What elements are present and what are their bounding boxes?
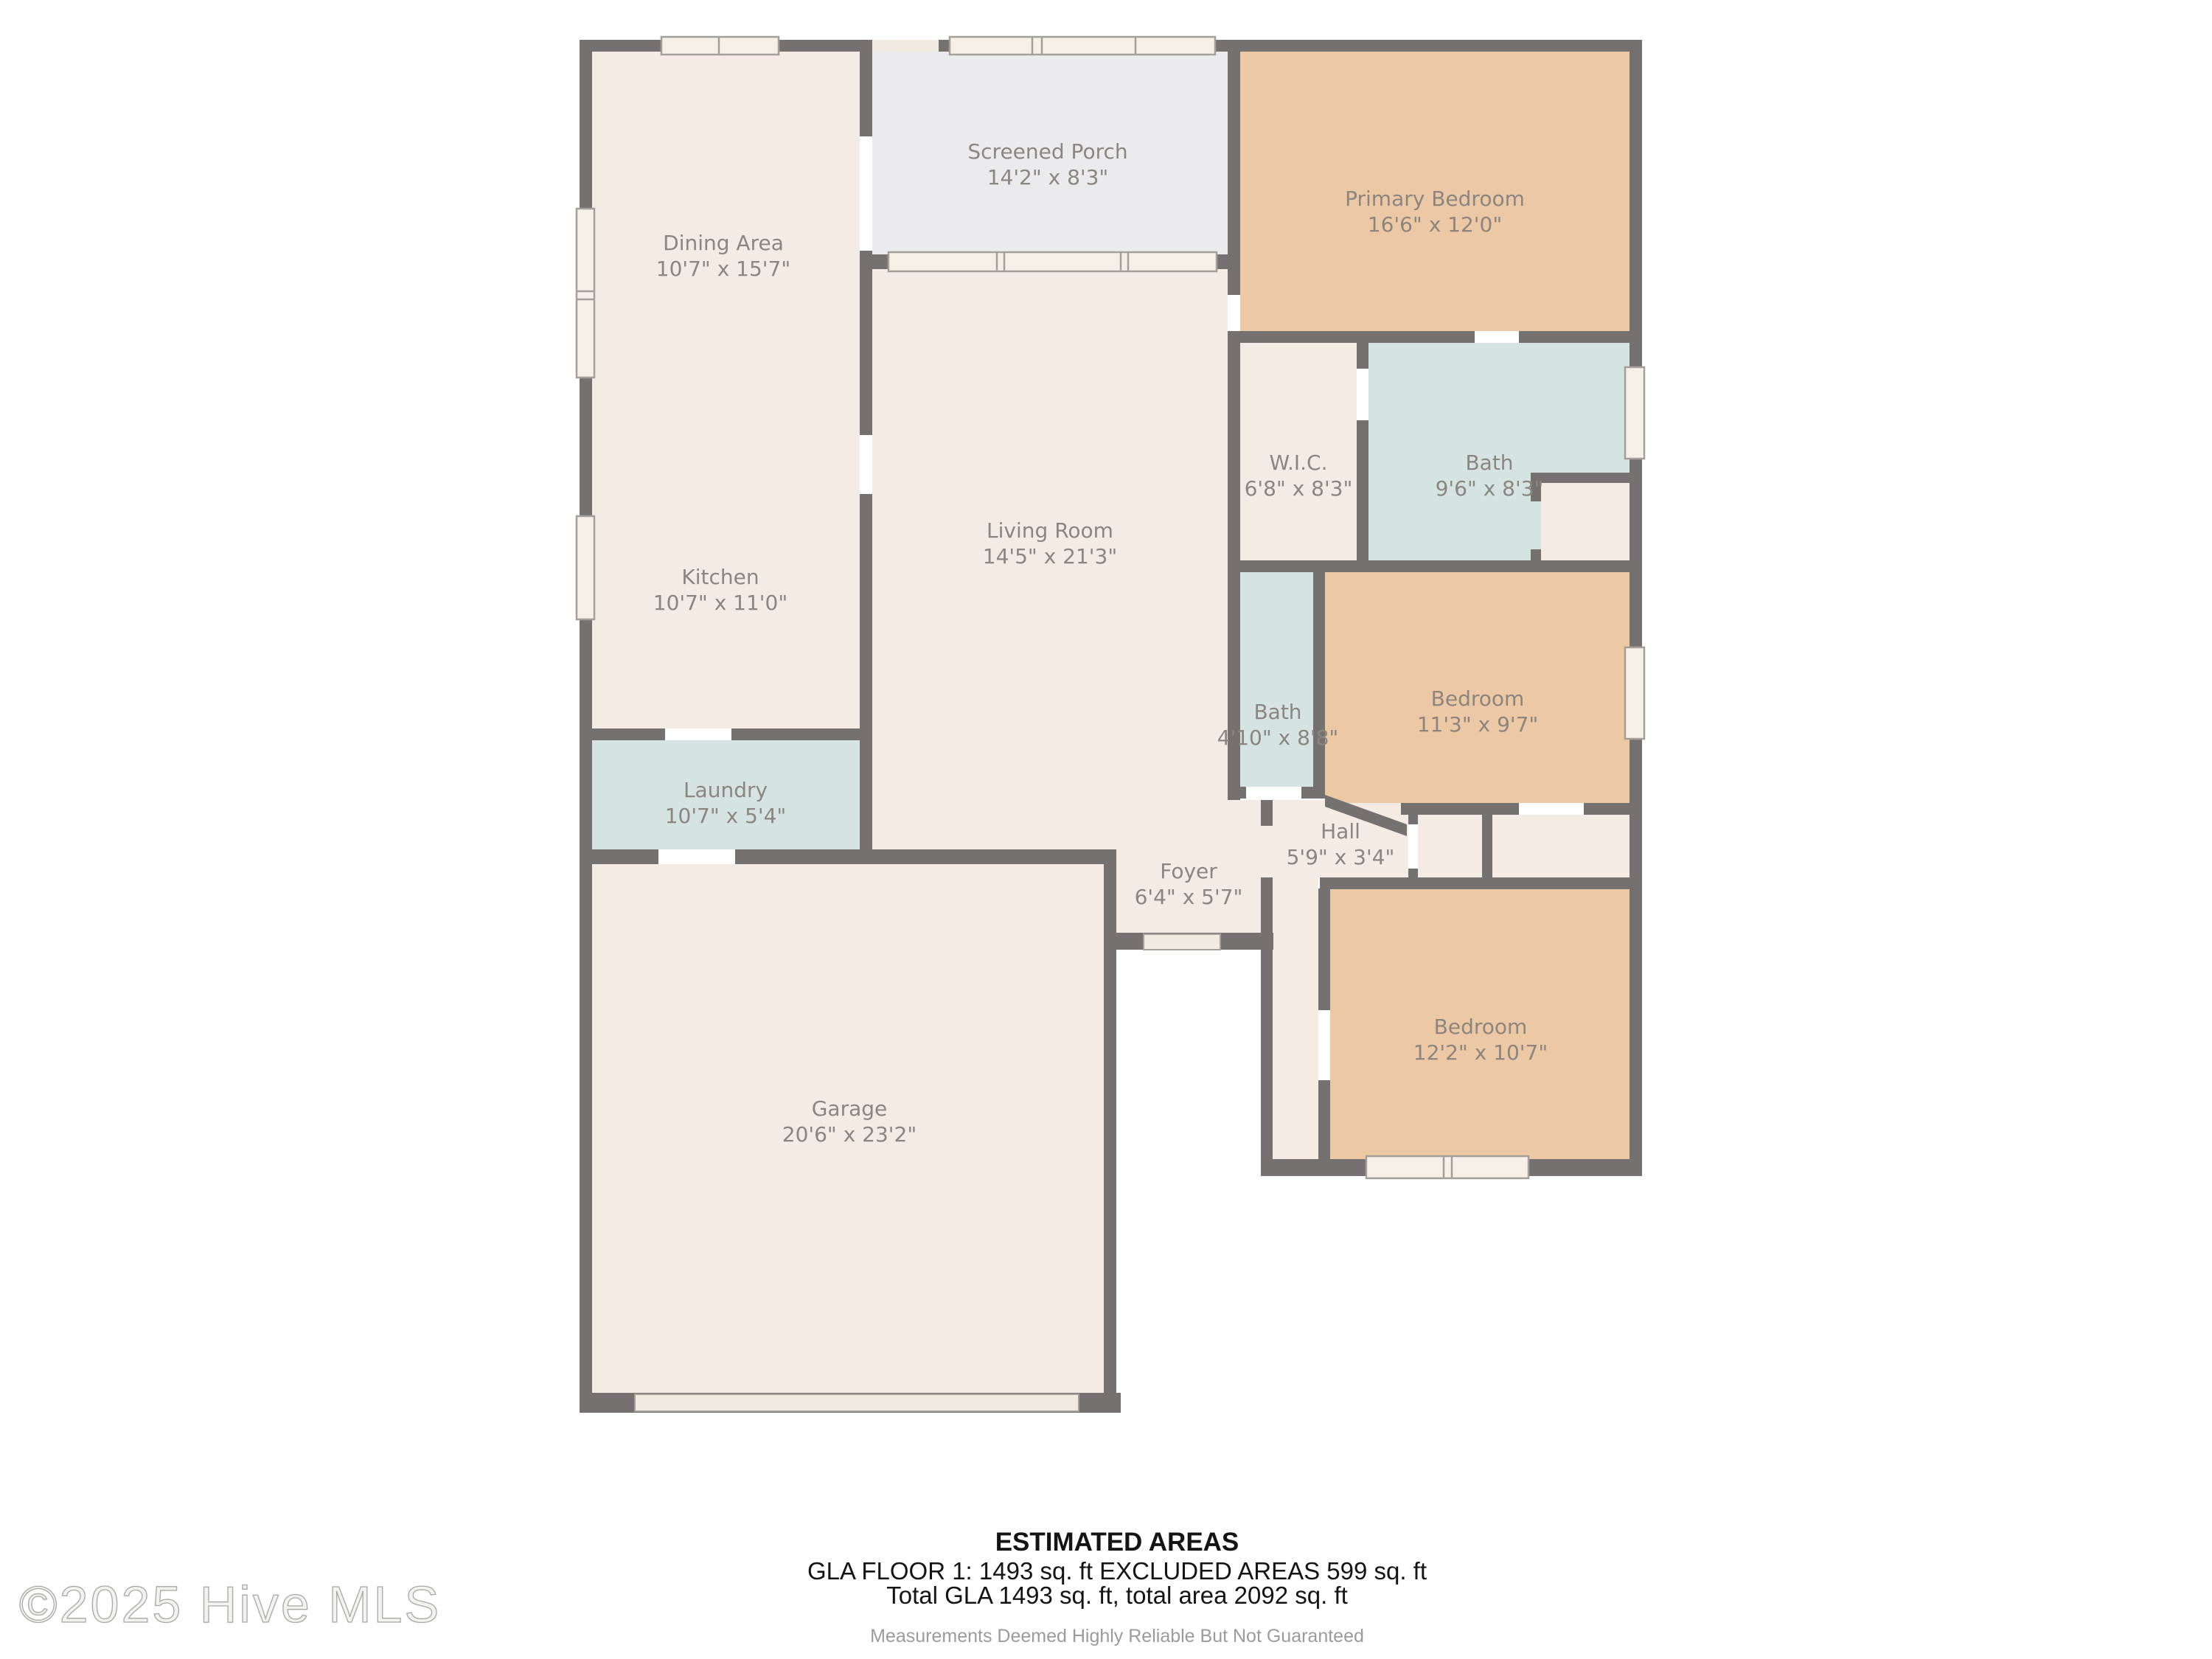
label-hall-bath: Bath 4'10" x 8'8" [1217, 699, 1339, 751]
room-name: Kitchen [653, 564, 787, 590]
room-name: Primary Bedroom [1345, 186, 1525, 212]
room-dims: 9'6" x 8'3" [1436, 476, 1544, 501]
room-dims: 20'6" x 23'2" [782, 1121, 917, 1147]
porch-screen-opening [872, 40, 939, 52]
room-closet-1 [1418, 815, 1482, 877]
window-glyph-porch-top [950, 37, 1215, 55]
room-name: Garage [782, 1096, 917, 1121]
floor-plan-drawing [0, 0, 2212, 1659]
room-dims: 12'2" x 10'7" [1413, 1040, 1548, 1065]
window-glyph-middle-bedroom [1625, 647, 1644, 739]
total-gla-line: Total GLA 1493 sq. ft, total area 2092 s… [886, 1582, 1348, 1610]
room-dims: 5'9" x 3'4" [1287, 844, 1395, 870]
room-name: Bedroom [1417, 686, 1539, 712]
label-laundry: Laundry 10'7" x 5'4" [665, 777, 787, 829]
room-name: Living Room [983, 518, 1117, 543]
room-name: Laundry [665, 777, 787, 803]
label-primary-bath: Bath 9'6" x 8'3" [1436, 450, 1544, 501]
room-water-closet [1541, 483, 1630, 560]
window-glyph-bottom-bedroom [1366, 1156, 1528, 1178]
label-primary-bedroom: Primary Bedroom 16'6" x 12'0" [1345, 186, 1525, 237]
garage-door-glyph [635, 1394, 1079, 1411]
label-kitchen: Kitchen 10'7" x 11'0" [653, 564, 787, 616]
room-name: W.I.C. [1245, 450, 1353, 476]
window-glyph-primary-bath [1625, 367, 1644, 459]
room-dims: 14'2" x 8'3" [967, 164, 1127, 190]
room-dims: 10'7" x 5'4" [665, 803, 787, 829]
room-dims: 10'7" x 15'7" [656, 256, 790, 282]
window-glyph-kitchen-left [577, 516, 594, 619]
label-living-room: Living Room 14'5" x 21'3" [983, 518, 1117, 569]
estimated-areas-title: ESTIMATED AREAS [995, 1528, 1239, 1557]
room-name: Screened Porch [967, 139, 1127, 164]
room-name: Hall [1287, 818, 1395, 844]
label-bottom-bedroom: Bedroom 12'2" x 10'7" [1413, 1014, 1548, 1065]
floor-plan: Dining Area 10'7" x 15'7" Screened Porch… [0, 0, 2212, 1659]
room-dims: 11'3" x 9'7" [1417, 712, 1539, 737]
label-foyer: Foyer 6'4" x 5'7" [1135, 858, 1243, 910]
label-middle-bedroom: Bedroom 11'3" x 9'7" [1417, 686, 1539, 737]
label-screened-porch: Screened Porch 14'2" x 8'3" [967, 139, 1127, 190]
wall-opening-layer [872, 40, 939, 52]
disclaimer-text: Measurements Deemed Highly Reliable But … [870, 1626, 1364, 1647]
mls-watermark: ©2025 Hive MLS [19, 1575, 441, 1634]
window-glyph-dining-left [577, 209, 594, 378]
room-dims: 6'8" x 8'3" [1245, 476, 1353, 501]
room-name: Dining Area [656, 230, 790, 256]
label-wic: W.I.C. 6'8" x 8'3" [1245, 450, 1353, 501]
room-dims: 6'4" x 5'7" [1135, 884, 1243, 910]
room-hall-strip [1273, 877, 1318, 1159]
room-name: Bath [1436, 450, 1544, 476]
window-glyph-porch-bottom [888, 252, 1217, 271]
window-glyph-dining-top [661, 37, 779, 55]
label-hall: Hall 5'9" x 3'4" [1287, 818, 1395, 870]
room-name: Foyer [1135, 858, 1243, 884]
room-dims: 16'6" x 12'0" [1345, 212, 1525, 237]
room-name: Bath [1217, 699, 1339, 725]
room-dims: 10'7" x 11'0" [653, 590, 787, 616]
label-garage: Garage 20'6" x 23'2" [782, 1096, 917, 1147]
room-name: Bedroom [1413, 1014, 1548, 1040]
room-dims: 14'5" x 21'3" [983, 543, 1117, 569]
room-closet-2 [1492, 815, 1630, 877]
room-hall-bath [1240, 572, 1313, 787]
label-dining-area: Dining Area 10'7" x 15'7" [656, 230, 790, 282]
room-dining-kitchen [592, 52, 860, 728]
room-dims: 4'10" x 8'8" [1217, 725, 1339, 751]
front-door-glyph [1144, 934, 1220, 950]
